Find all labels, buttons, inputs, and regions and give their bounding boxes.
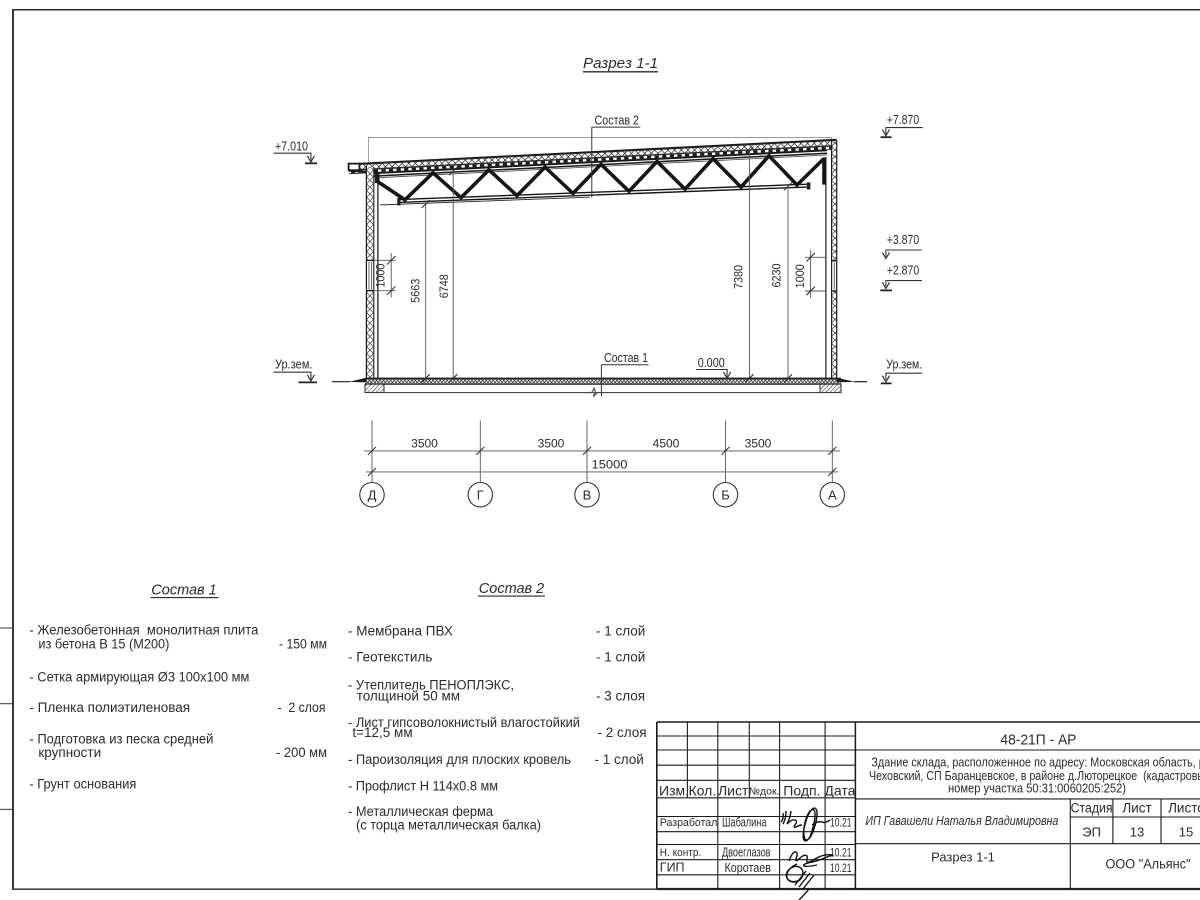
svg-text:6230: 6230 [770, 263, 784, 287]
svg-text:Состав 1: Состав 1 [151, 583, 216, 599]
svg-text:Шабалина: Шабалина [722, 815, 767, 829]
svg-text:- Грунт основания: - Грунт основания [29, 777, 136, 792]
svg-text:1000: 1000 [373, 263, 387, 287]
svg-text:- Профлист Н 114х0.8 мм: - Профлист Н 114х0.8 мм [348, 779, 498, 794]
svg-text:Стадия: Стадия [1071, 800, 1113, 815]
svg-text:+3.870: +3.870 [887, 233, 920, 247]
svg-text:10.21: 10.21 [830, 817, 852, 829]
svg-text:- Сетка армирующая Ø3 100х100: - Сетка армирующая Ø3 100х100 мм [29, 669, 249, 684]
svg-text:(с торца металлическая балка): (с торца металлическая балка) [356, 818, 541, 833]
svg-text:Разработал: Разработал [660, 817, 718, 829]
svg-text:5663: 5663 [408, 279, 422, 303]
svg-text:- Пароизоляция для плоских кро: - Пароизоляция для плоских кровель [348, 752, 571, 767]
svg-text:1000: 1000 [793, 264, 807, 288]
svg-text:10.21: 10.21 [830, 863, 852, 875]
svg-text:Лист: Лист [1122, 800, 1151, 815]
svg-text:- 200 мм: - 200 мм [276, 745, 327, 760]
svg-text:Кол.: Кол. [688, 782, 716, 798]
svg-text:Двоеглазов: Двоеглазов [722, 846, 771, 860]
svg-text:Разрез 1-1: Разрез 1-1 [583, 55, 658, 72]
svg-text:- 2 слоя: - 2 слоя [598, 725, 647, 740]
svg-text:ИП Гавашели Наталья Владимиров: ИП Гавашели Наталья Владимировна [865, 813, 1058, 828]
svg-text:- 1 слой: - 1 слой [595, 752, 644, 767]
svg-text:- 2 слоя: - 2 слоя [278, 700, 326, 715]
svg-text:10.21: 10.21 [830, 848, 852, 860]
svg-text:15: 15 [1179, 824, 1193, 839]
svg-text:48-21П - АР: 48-21П - АР [1000, 731, 1076, 748]
svg-text:ГИП: ГИП [660, 861, 685, 875]
svg-text:Состав 1: Состав 1 [604, 351, 648, 365]
svg-text:t=12,5 мм: t=12,5 мм [352, 725, 412, 740]
svg-text:Разрез 1-1: Разрез 1-1 [931, 849, 995, 864]
svg-text:+2.870: +2.870 [887, 264, 920, 278]
svg-text:7380: 7380 [731, 265, 745, 289]
svg-text:- Пленка полиэтиленовая: - Пленка полиэтиленовая [29, 700, 190, 715]
svg-text:Изм.: Изм. [659, 782, 689, 798]
svg-text:номер участка 50:31:0060205:25: номер участка 50:31:0060205:252) [948, 781, 1126, 796]
svg-text:- 1 слой: - 1 слой [596, 650, 645, 665]
svg-text:толщиной 50 мм: толщиной 50 мм [357, 688, 460, 703]
svg-text:Ур.зем.: Ур.зем. [275, 357, 313, 371]
svg-text:Б: Б [721, 488, 730, 503]
svg-text:15000: 15000 [592, 458, 628, 472]
svg-text:3500: 3500 [411, 436, 438, 450]
svg-text:13: 13 [1130, 824, 1144, 839]
svg-text:+7.870: +7.870 [887, 113, 920, 127]
svg-text:Состав 2: Состав 2 [595, 114, 640, 128]
svg-text:Г: Г [477, 488, 484, 503]
svg-text:ООО "Альянс": ООО "Альянс" [1106, 856, 1191, 871]
svg-text:3500: 3500 [538, 436, 565, 450]
svg-text:4500: 4500 [653, 436, 680, 450]
svg-text:ЭП: ЭП [1082, 824, 1101, 839]
svg-text:- 150 мм: - 150 мм [279, 636, 327, 651]
svg-text:0.000: 0.000 [698, 356, 725, 370]
svg-text:- Железобетонная монолитная п: - Железобетонная монолитная плита [29, 622, 258, 637]
svg-text:крупности: крупности [38, 745, 101, 760]
svg-text:Коротаев: Коротаев [725, 861, 772, 875]
svg-text:- 1 слой: - 1 слой [596, 624, 645, 639]
svg-text:Лист: Лист [718, 782, 749, 798]
svg-text:Н. контр.: Н. контр. [660, 847, 702, 859]
svg-text:Д: Д [368, 488, 377, 503]
svg-text:В: В [583, 488, 592, 503]
svg-text:6748: 6748 [437, 274, 451, 298]
svg-text:3500: 3500 [745, 436, 772, 450]
svg-text:Листов: Листов [1168, 800, 1200, 815]
svg-text:- 3 слоя: - 3 слоя [596, 688, 645, 703]
svg-text:Дата: Дата [824, 782, 855, 798]
svg-text:А: А [828, 488, 837, 503]
svg-text:+7.010: +7.010 [275, 140, 308, 154]
svg-text:из бетона В 15 (М200): из бетона В 15 (М200) [38, 636, 169, 651]
svg-text:Ур.зем.: Ур.зем. [886, 357, 922, 371]
svg-text:- Мембрана ПВХ: - Мембрана ПВХ [348, 624, 453, 639]
svg-text:Состав 2: Состав 2 [479, 581, 544, 597]
svg-text:Подп.: Подп. [783, 782, 820, 798]
svg-text:- Геотекстиль: - Геотекстиль [348, 650, 432, 665]
svg-text:№док.: №док. [749, 785, 780, 797]
